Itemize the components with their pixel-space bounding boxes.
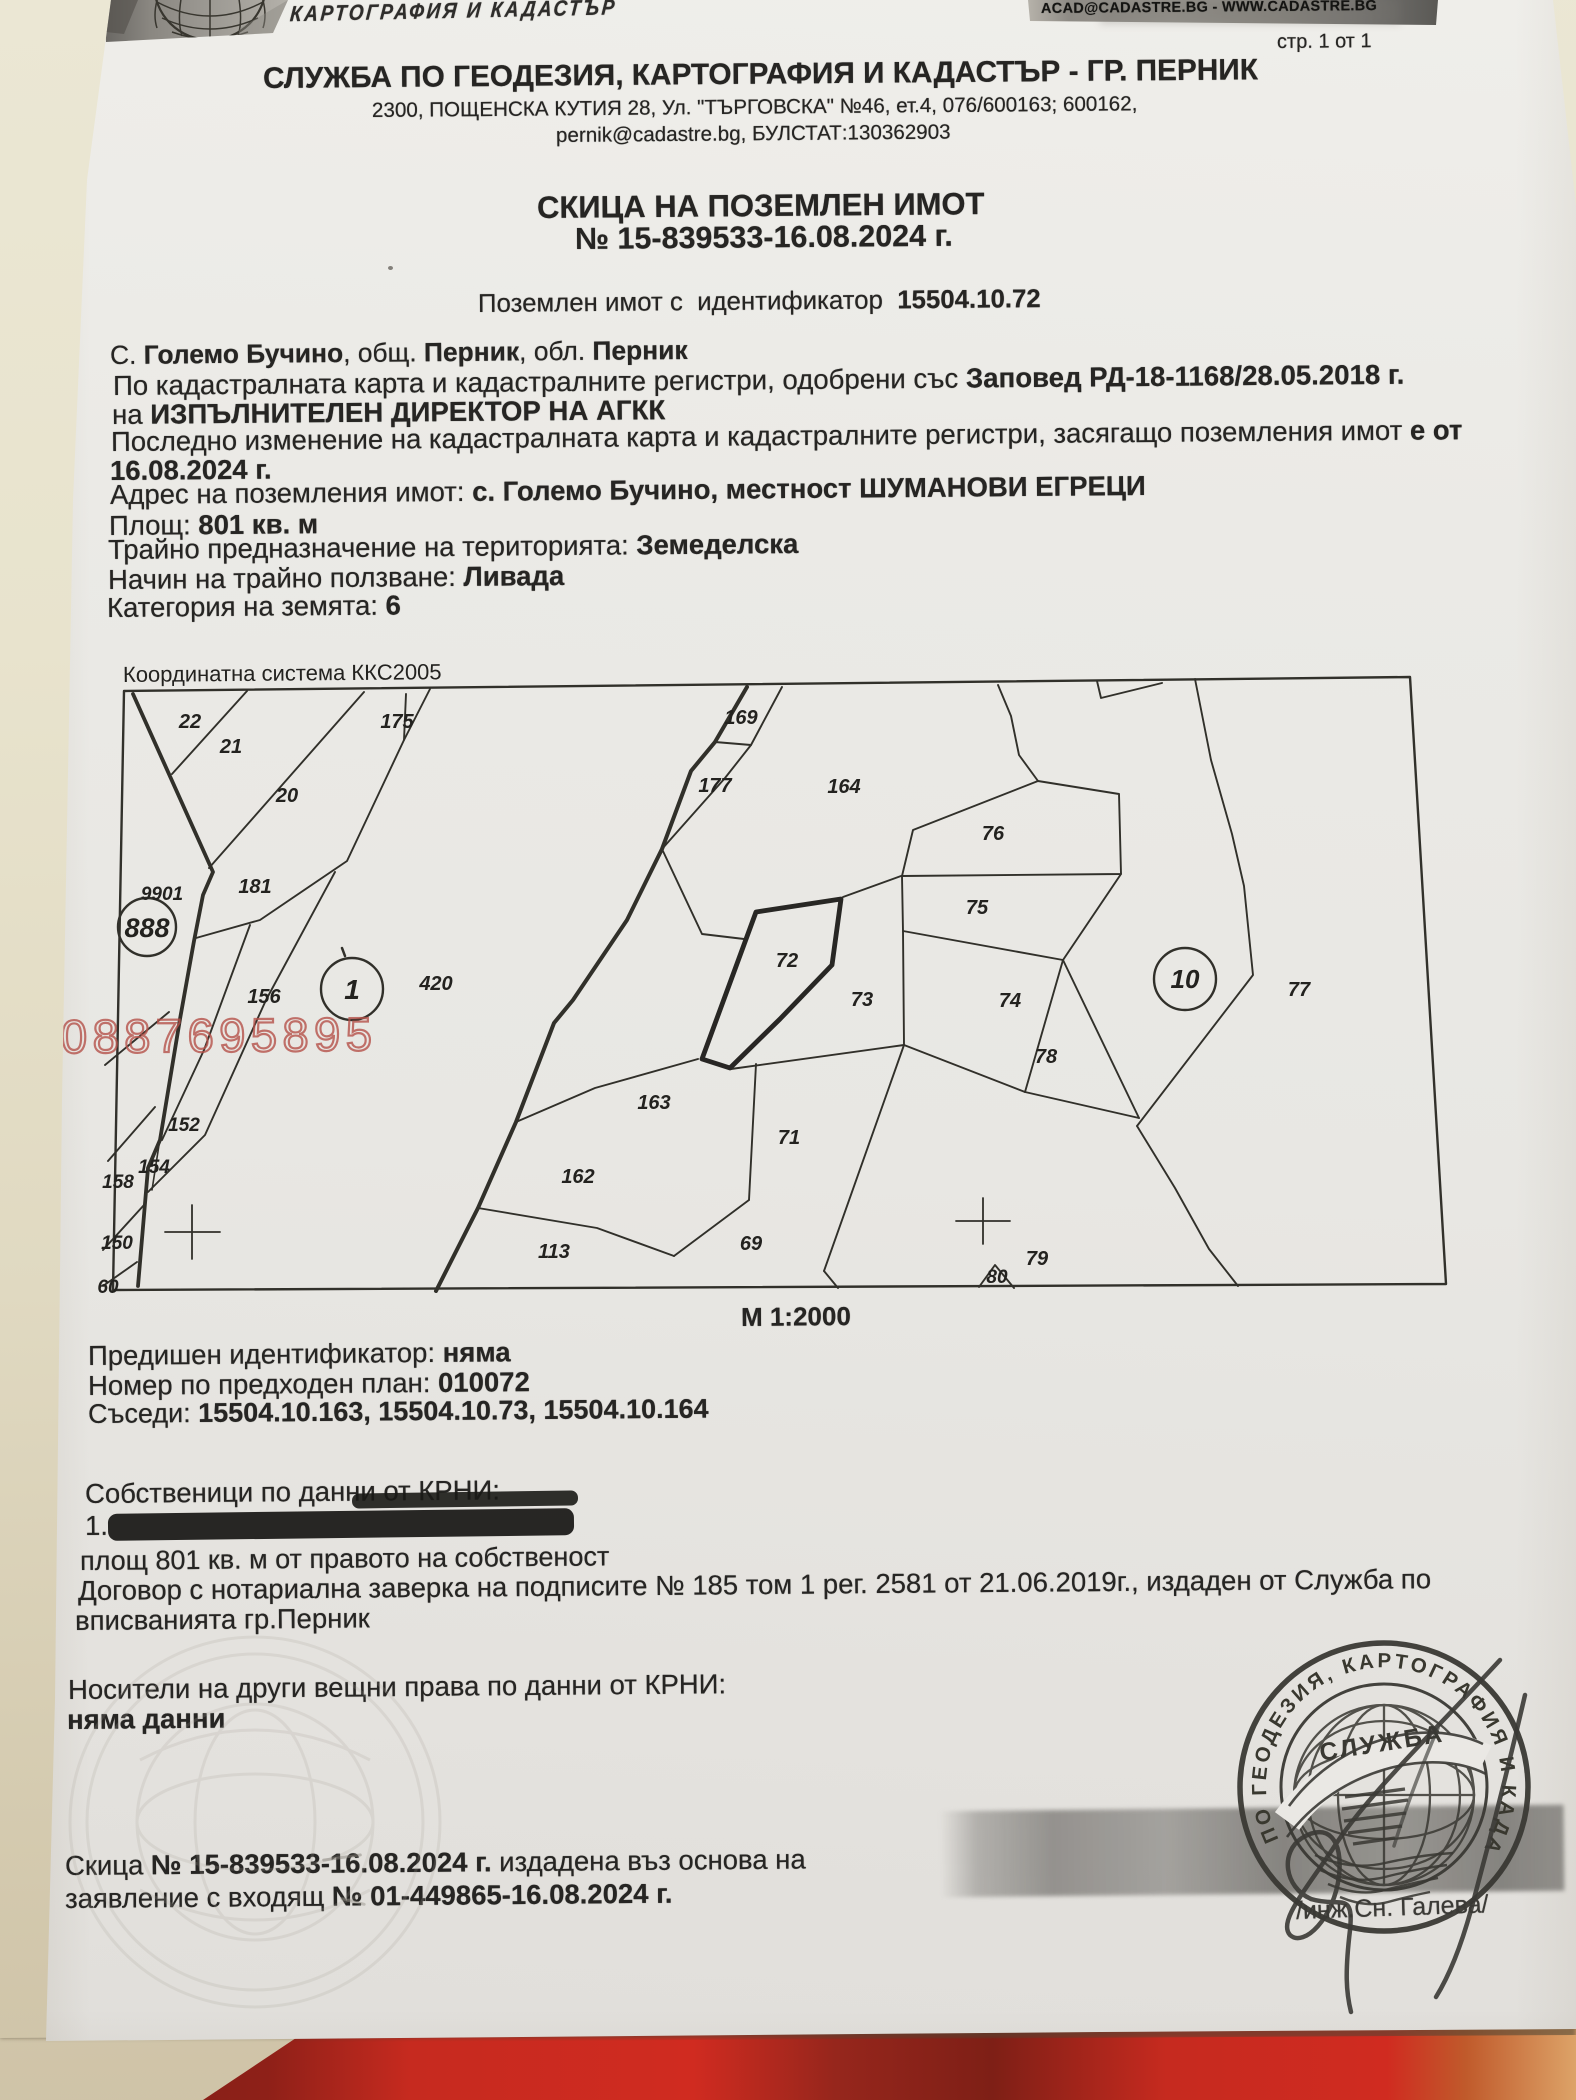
svg-text:77: 77 [1288,979,1311,1001]
svg-text:158: 158 [102,1172,134,1193]
svg-text:79: 79 [1026,1248,1049,1270]
svg-text:74: 74 [999,990,1021,1012]
svg-text:175: 175 [380,711,414,733]
svg-text:113: 113 [538,1241,570,1263]
svg-text:20: 20 [275,785,298,807]
svg-text:72: 72 [776,950,798,972]
svg-text:76: 76 [982,823,1005,845]
svg-text:80: 80 [986,1267,1008,1288]
svg-text:152: 152 [168,1115,200,1136]
svg-text:164: 164 [827,776,860,798]
svg-text:21: 21 [219,736,242,758]
svg-text:Координатна система ККС2005: Координатна система ККС2005 [123,659,442,687]
svg-text:150: 150 [101,1233,133,1254]
svg-text:1: 1 [344,974,360,1005]
svg-text:162: 162 [561,1166,594,1188]
svg-text:888: 888 [124,913,169,943]
svg-text:156: 156 [247,986,281,1008]
svg-text:73: 73 [851,989,873,1011]
svg-text:169: 169 [724,707,758,729]
svg-text:10: 10 [1171,964,1200,994]
svg-text:75: 75 [966,897,989,919]
svg-text:71: 71 [778,1127,800,1149]
svg-text:154: 154 [138,1157,170,1178]
svg-text:69: 69 [740,1233,763,1255]
svg-text:60: 60 [97,1277,119,1298]
svg-text:9901: 9901 [141,884,183,905]
svg-text:163: 163 [637,1092,670,1114]
svg-text:78: 78 [1035,1046,1058,1068]
svg-text:22: 22 [178,711,201,733]
svg-text:420: 420 [418,973,452,995]
svg-text:177: 177 [698,775,732,797]
svg-text:181: 181 [238,876,271,898]
